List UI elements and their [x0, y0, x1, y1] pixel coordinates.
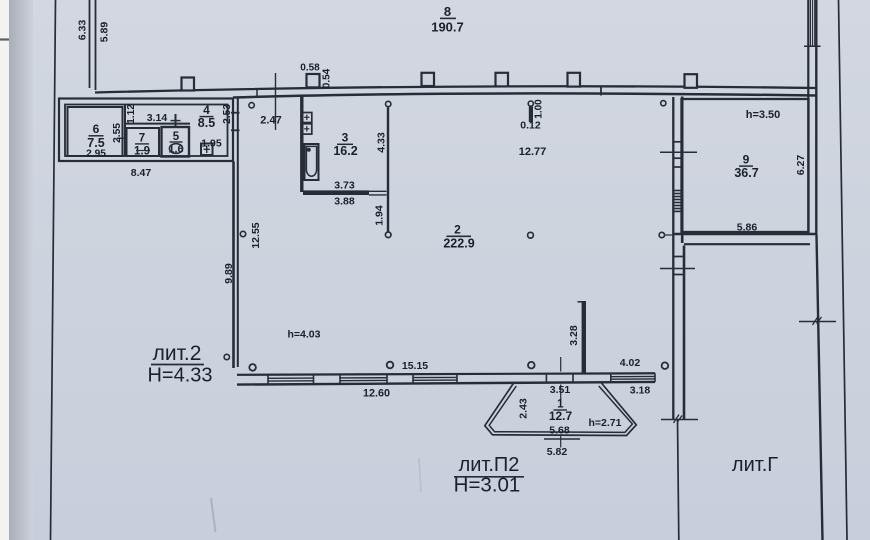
svg-text:6.27: 6.27: [795, 155, 807, 176]
svg-text:5: 5: [173, 131, 180, 143]
svg-text:1.9: 1.9: [134, 146, 150, 158]
svg-text:5.86: 5.86: [737, 222, 758, 234]
svg-text:9: 9: [743, 153, 750, 167]
svg-text:2.47: 2.47: [260, 115, 281, 127]
svg-text:1.95: 1.95: [201, 138, 222, 150]
svg-text:4: 4: [203, 103, 210, 117]
svg-text:12.55: 12.55: [250, 222, 262, 248]
svg-text:2.43: 2.43: [518, 398, 530, 419]
svg-text:0.58: 0.58: [300, 63, 320, 74]
svg-text:0.54: 0.54: [322, 68, 333, 88]
svg-text:1.00: 1.00: [534, 99, 545, 119]
svg-text:2: 2: [454, 223, 461, 237]
svg-text:Н=4.33: Н=4.33: [147, 365, 212, 387]
svg-text:2.55: 2.55: [112, 123, 123, 143]
svg-text:3.14: 3.14: [147, 112, 168, 124]
svg-text:1.12: 1.12: [126, 104, 137, 124]
svg-text:h=3.50: h=3.50: [746, 109, 781, 121]
svg-text:15.15: 15.15: [402, 360, 428, 372]
svg-text:лит.Г: лит.Г: [732, 454, 778, 476]
svg-text:7: 7: [139, 133, 145, 145]
svg-text:4.33: 4.33: [376, 132, 388, 153]
svg-text:h=4.03: h=4.03: [288, 329, 321, 341]
svg-text:3: 3: [342, 131, 349, 145]
svg-text:12.60: 12.60: [363, 388, 390, 400]
svg-text:3.88: 3.88: [334, 196, 355, 208]
svg-text:3.18: 3.18: [630, 385, 651, 397]
svg-text:16.2: 16.2: [333, 144, 357, 158]
svg-text:3.28: 3.28: [568, 325, 580, 346]
svg-text:3.51: 3.51: [550, 384, 571, 396]
svg-text:8.5: 8.5: [198, 116, 215, 130]
svg-text:8: 8: [444, 4, 451, 19]
svg-text:5.82: 5.82: [547, 446, 568, 458]
svg-text:2.95: 2.95: [86, 149, 106, 160]
svg-text:лит.2: лит.2: [153, 342, 202, 365]
svg-text:4.02: 4.02: [620, 357, 641, 369]
svg-text:5.68: 5.68: [549, 425, 570, 437]
svg-text:12.77: 12.77: [519, 146, 547, 158]
svg-text:8.47: 8.47: [131, 167, 152, 179]
svg-text:1.94: 1.94: [373, 205, 385, 226]
svg-text:190.7: 190.7: [431, 20, 464, 35]
svg-text:5.89: 5.89: [99, 22, 111, 43]
svg-text:6: 6: [93, 122, 100, 136]
svg-text:0.12: 0.12: [520, 120, 541, 132]
svg-text:12.7: 12.7: [549, 409, 573, 423]
svg-text:6.33: 6.33: [77, 20, 89, 41]
svg-text:9.89: 9.89: [223, 263, 235, 284]
svg-text:2.53: 2.53: [222, 104, 233, 124]
svg-text:h=2.71: h=2.71: [589, 417, 622, 429]
svg-text:3.73: 3.73: [334, 180, 355, 192]
svg-text:Н=3.01: Н=3.01: [454, 474, 521, 497]
svg-text:222.9: 222.9: [443, 237, 474, 251]
svg-text:36.7: 36.7: [734, 166, 758, 180]
